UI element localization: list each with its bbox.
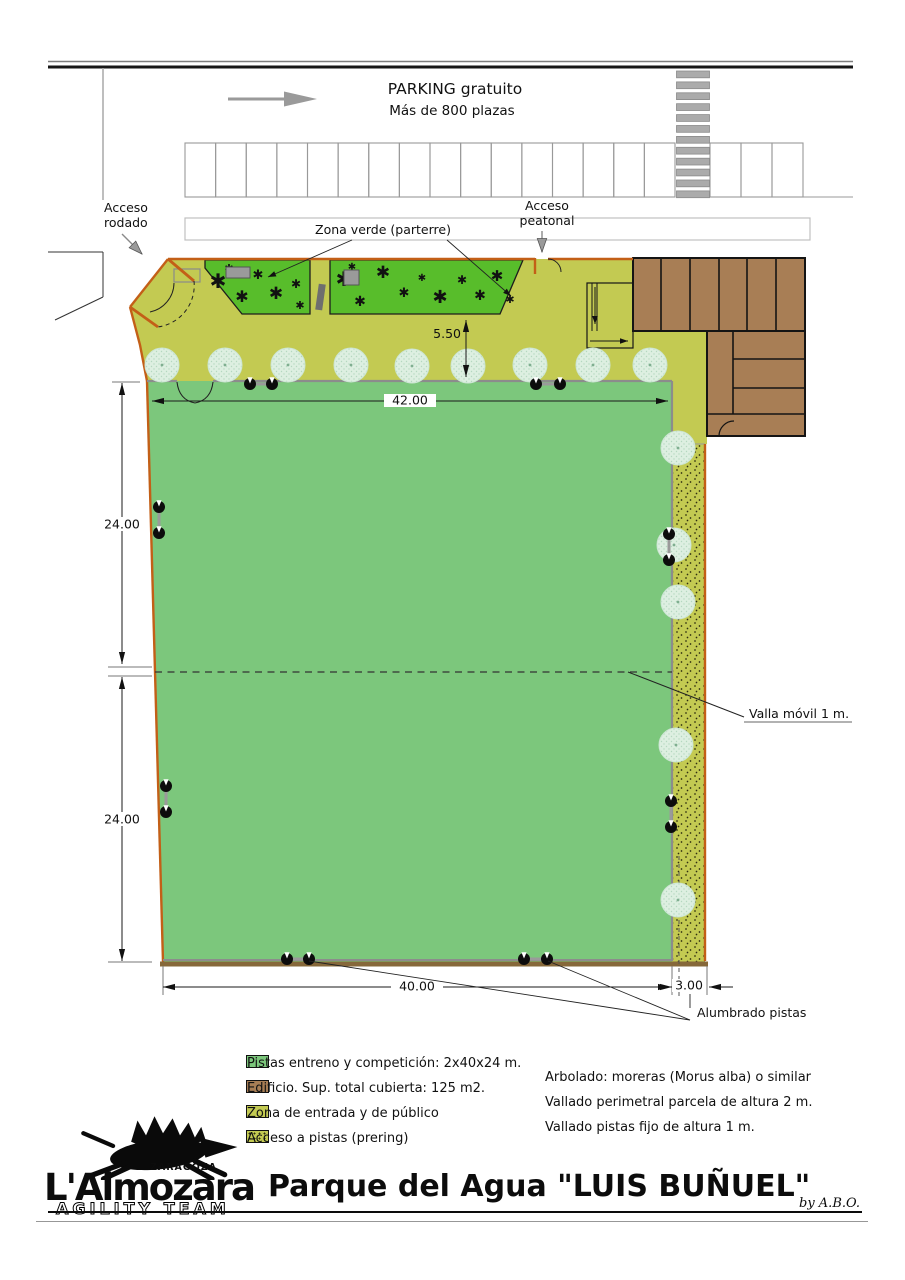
dim-24-00-upper: 24.00 (104, 517, 140, 532)
tree-center-dot (411, 365, 414, 368)
team-city: ZARAGOZA (150, 1162, 217, 1173)
dim-3-00: 3.00 (675, 978, 703, 993)
tree-center-dot (677, 601, 680, 604)
tree-center-dot (649, 364, 652, 367)
crosswalk-stripe (677, 104, 710, 111)
crosswalk-stripe (677, 115, 710, 122)
parking-stall (553, 143, 584, 197)
legend-tree-icon: Arbolado: moreras (Morus alba) o similar (545, 1070, 577, 1085)
tree-center-dot (673, 544, 676, 547)
footer-rule (36, 1221, 868, 1222)
zona-verde-label: Zona verde (parterre) (315, 222, 451, 237)
tree-center-dot (161, 364, 164, 367)
crosswalk-stripe (677, 180, 710, 187)
parking-stall (430, 143, 461, 197)
parking-stall (522, 143, 553, 197)
parking-stall (644, 143, 675, 197)
parking-stall (491, 143, 522, 197)
tree-center-dot (350, 364, 353, 367)
plant-icon: ✱ (457, 273, 467, 287)
plant-icon: ✱ (235, 287, 248, 306)
legend-fence-1m-line: Vallado pistas fijo de altura 1 m. (545, 1120, 577, 1135)
traffic-direction-arrow-icon (228, 92, 317, 107)
crosswalk-stripe (677, 71, 710, 78)
plant-icon: ✱ (418, 273, 426, 284)
legend-item: Vallado perimetral parcela de altura 2 m… (545, 1090, 577, 1115)
legend-item: Acceso a pistas (prering) (246, 1124, 279, 1149)
crosswalk-stripe (677, 82, 710, 89)
tree-center-dot (675, 744, 678, 747)
site-plan: PARKING gratuito Más de 800 plazas ✱✱✱✱✱… (0, 0, 905, 1280)
plan-title: Parque del Agua "LUIS BUÑUEL" (268, 1169, 810, 1204)
legend-fence-2m-line: Vallado perimetral parcela de altura 2 m… (545, 1095, 577, 1110)
dim-42-00: 42.00 (392, 393, 428, 408)
parking-stall (614, 143, 645, 197)
tree-center-dot (287, 364, 290, 367)
parking-stall (277, 143, 308, 197)
tree-center-dot (529, 364, 532, 367)
parking-stall (461, 143, 492, 197)
dim-24-00-lower: 24.00 (104, 812, 140, 827)
legend-item: Pistas entreno y competición: 2x40x24 m. (246, 1049, 279, 1074)
parking-stall (338, 143, 369, 197)
plant-icon: ✱ (399, 286, 410, 301)
acceso-peatonal-label-2: peatonal (520, 213, 575, 228)
bench (344, 270, 359, 285)
parking-stall (369, 143, 400, 197)
legend-swatch-olive: Zona de entrada y de público (246, 1105, 269, 1118)
valla-movil-label: Valla móvil 1 m. (749, 706, 849, 721)
parking-stall (710, 143, 741, 197)
crosswalk-stripe (677, 158, 710, 165)
crosswalk-stripe (677, 191, 710, 198)
plant-icon: ✱ (253, 268, 264, 283)
alumbrado-label: Alumbrado pistas (697, 1005, 806, 1020)
plant-icon: ✱ (354, 294, 366, 310)
acceso-peatonal-label-1: Acceso (525, 198, 569, 213)
parking-title: PARKING gratuito (388, 80, 522, 98)
parking-stall (399, 143, 430, 197)
legend-areas: Pistas entreno y competición: 2x40x24 m.… (246, 1049, 279, 1149)
parking-stall (772, 143, 803, 197)
sidewalk (185, 218, 810, 240)
crosswalk-stripe (677, 169, 710, 176)
parking-row (185, 143, 803, 197)
parking-stall (246, 143, 277, 197)
tree-center-dot (677, 899, 680, 902)
crosswalk-stripe (677, 126, 710, 133)
plant-icon: ✱ (474, 288, 486, 304)
title-rule (48, 1211, 862, 1213)
legend-item: Edificio. Sup. total cubierta: 125 m2. (246, 1074, 279, 1099)
parking-subtitle: Más de 800 plazas (389, 103, 514, 119)
crosswalk-stripe (677, 147, 710, 154)
plant-icon: ✱ (269, 284, 283, 304)
dim-40-00: 40.00 (399, 979, 435, 994)
tree-center-dot (677, 447, 680, 450)
crosswalk-stripe (677, 136, 710, 143)
plant-icon: ✱ (432, 287, 447, 308)
crosswalk (677, 71, 710, 198)
acceso-rodado-label-2: rodado (104, 215, 148, 230)
tree-center-dot (592, 364, 595, 367)
legend-symbols: Arbolado: moreras (Morus alba) o similar… (545, 1065, 577, 1140)
parking-stall (583, 143, 614, 197)
crosswalk-stripe (677, 93, 710, 100)
parking-stall (741, 143, 772, 197)
tree-center-dot (467, 365, 470, 368)
byline: by A.B.O. (799, 1196, 860, 1211)
parking-stall (308, 143, 339, 197)
legend-swatch-building: Edificio. Sup. total cubierta: 125 m2. (246, 1080, 269, 1093)
driveway-edges (48, 252, 103, 320)
plant-icon: ✱ (291, 277, 301, 291)
acceso-rodado-label-1: Acceso (104, 200, 148, 215)
legend-swatch-pista: Pistas entreno y competición: 2x40x24 m. (246, 1055, 269, 1068)
bench (226, 267, 250, 278)
plant-icon: ✱ (295, 299, 304, 312)
plant-icon: ✱ (491, 267, 504, 285)
tree-center-dot (224, 364, 227, 367)
legend-swatch-prering: Acceso a pistas (prering) (246, 1130, 269, 1143)
legend-item: Arbolado: moreras (Morus alba) o similar (545, 1065, 577, 1090)
parking-stall (185, 143, 216, 197)
plant-icon: ✱ (376, 263, 390, 283)
dim-5-50: 5.50 (433, 326, 461, 341)
parking-stall (216, 143, 247, 197)
legend-item: Zona de entrada y de público (246, 1099, 279, 1124)
team-subtitle: AGILITY TEAM (56, 1199, 230, 1218)
legend-item: Vallado pistas fijo de altura 1 m. (545, 1115, 577, 1140)
